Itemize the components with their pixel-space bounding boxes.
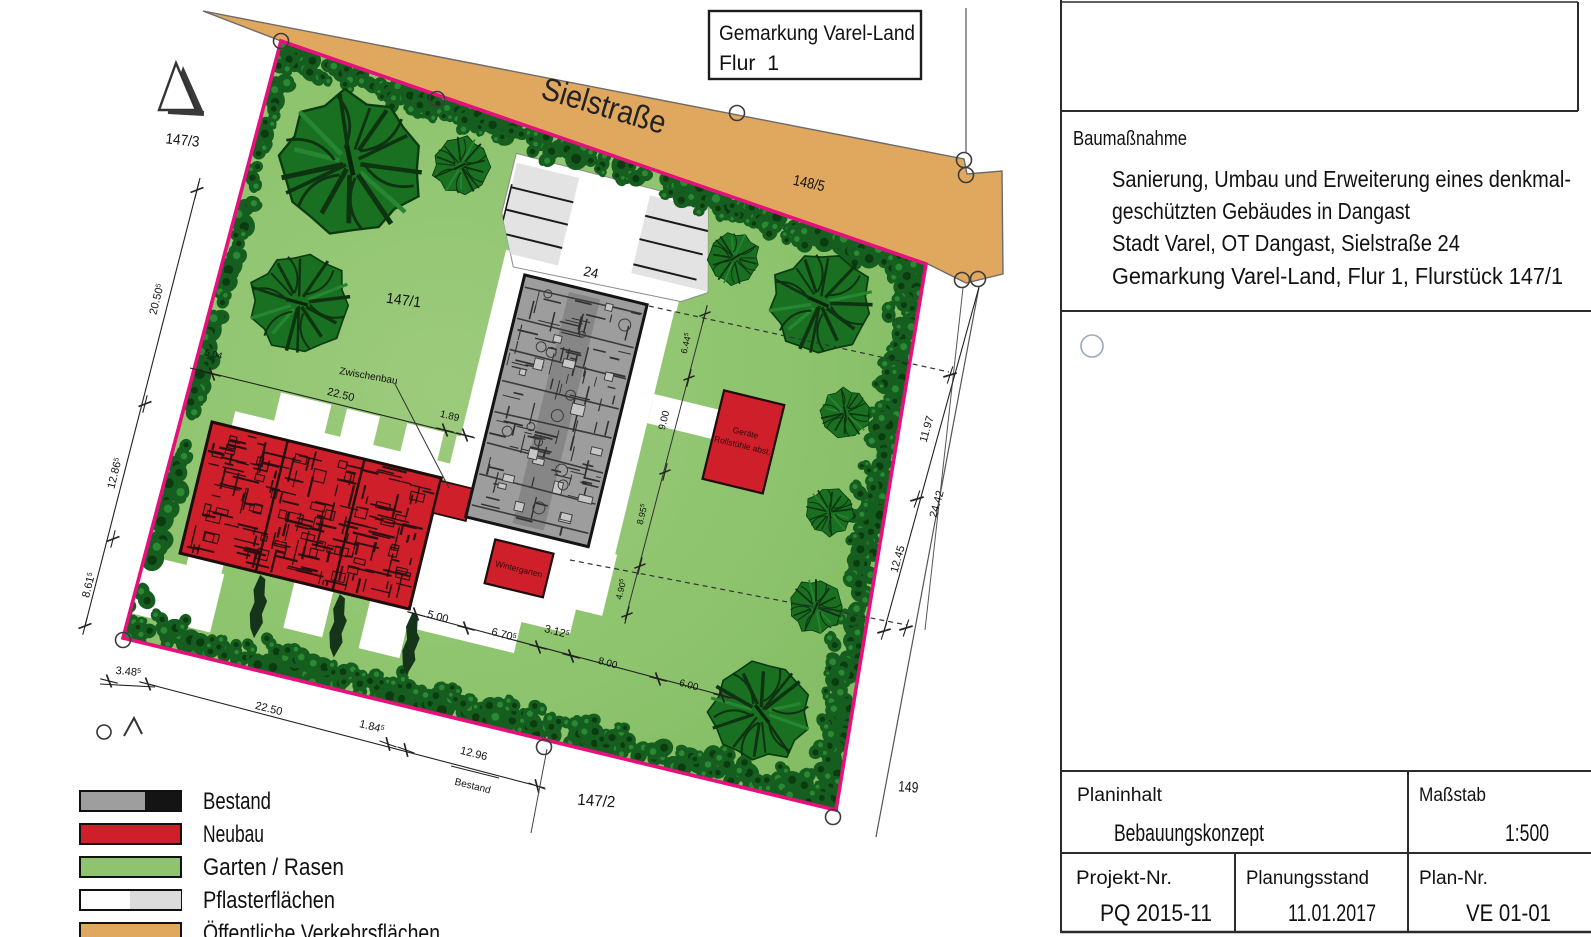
svg-text:Maßstab: Maßstab bbox=[1419, 785, 1486, 806]
svg-text:Sanierung, Umbau und Erweiteru: Sanierung, Umbau und Erweiterung eines d… bbox=[1112, 166, 1571, 192]
svg-text:147/2: 147/2 bbox=[577, 792, 616, 812]
svg-text:VE 01-01: VE 01-01 bbox=[1466, 900, 1551, 927]
svg-text:PQ 2015-11: PQ 2015-11 bbox=[1100, 900, 1212, 927]
svg-text:147/3: 147/3 bbox=[165, 130, 201, 150]
svg-text:Öffentliche Verkehrsflächen: Öffentliche Verkehrsflächen bbox=[203, 920, 440, 937]
svg-text:geschützten Gebäudes in Dangas: geschützten Gebäudes in Dangast bbox=[1112, 198, 1411, 224]
svg-text:149: 149 bbox=[898, 778, 919, 796]
svg-text:Planungsstand: Planungsstand bbox=[1246, 868, 1369, 889]
svg-text:Garten / Rasen: Garten / Rasen bbox=[203, 854, 344, 881]
svg-text:Stadt Varel, OT Dangast, Siels: Stadt Varel, OT Dangast, Sielstraße 24 bbox=[1112, 230, 1460, 256]
svg-text:Pflasterflächen: Pflasterflächen bbox=[203, 887, 335, 914]
svg-text:11.01.2017: 11.01.2017 bbox=[1288, 900, 1376, 927]
svg-text:Bestand: Bestand bbox=[203, 788, 271, 815]
svg-text:Gemarkung Varel-Land: Gemarkung Varel-Land bbox=[719, 22, 915, 45]
svg-text:Bebauungskonzept: Bebauungskonzept bbox=[1114, 820, 1264, 847]
svg-text:Planinhalt: Planinhalt bbox=[1077, 785, 1163, 806]
svg-text:Neubau: Neubau bbox=[203, 821, 264, 848]
svg-text:Plan-Nr.: Plan-Nr. bbox=[1419, 868, 1488, 889]
svg-text:Gemarkung Varel-Land, Flur 1,: Gemarkung Varel-Land, Flur 1, Flurstück … bbox=[1112, 263, 1563, 289]
svg-text:1:500: 1:500 bbox=[1505, 820, 1549, 847]
svg-text:Flur 1: Flur 1 bbox=[719, 52, 779, 75]
svg-text:Projekt-Nr.: Projekt-Nr. bbox=[1076, 868, 1172, 889]
svg-text:Baumaßnahme: Baumaßnahme bbox=[1073, 128, 1187, 150]
